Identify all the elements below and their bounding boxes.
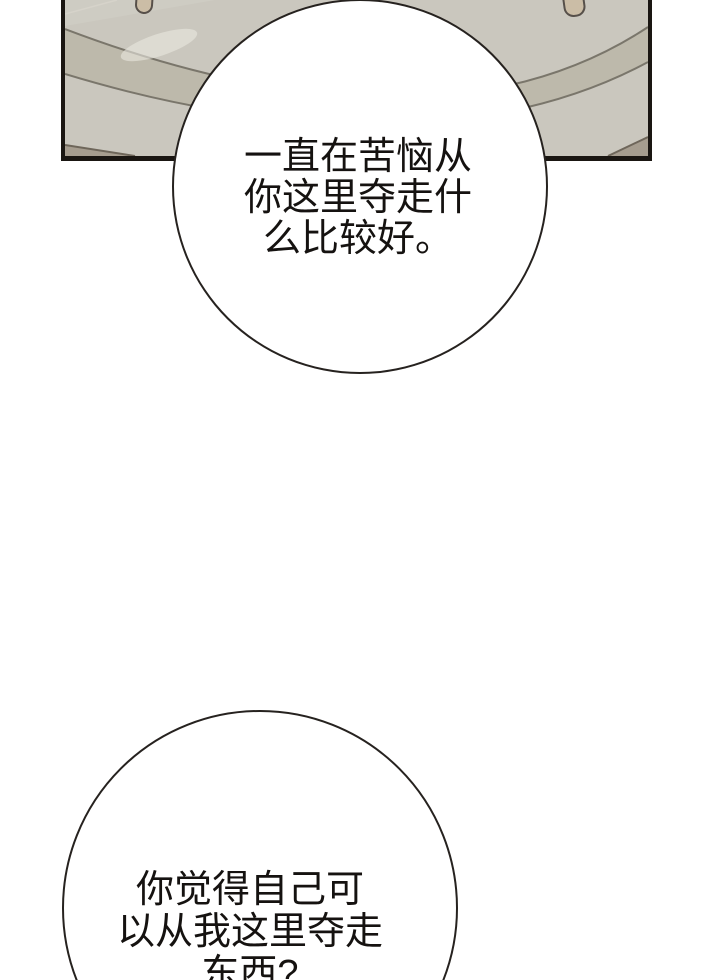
bubble-line: 你这里夺走什 bbox=[172, 178, 544, 219]
bubble-line: 一直在苦恼从 bbox=[172, 137, 544, 178]
bubble-line: 东西? bbox=[54, 953, 446, 980]
bubble-line: 么比较好。 bbox=[172, 219, 544, 260]
comic-page: 一直在苦恼从 你这里夺走什 么比较好。 你觉得自己可 以从我这里夺走 东西? bbox=[0, 0, 720, 980]
speech-bubble-2-text: 你觉得自己可 以从我这里夺走 东西? bbox=[54, 869, 446, 980]
bubble-line: 以从我这里夺走 bbox=[54, 911, 446, 953]
bubble-line: 你觉得自己可 bbox=[54, 869, 446, 911]
speech-bubble-1-text: 一直在苦恼从 你这里夺走什 么比较好。 bbox=[172, 137, 544, 260]
